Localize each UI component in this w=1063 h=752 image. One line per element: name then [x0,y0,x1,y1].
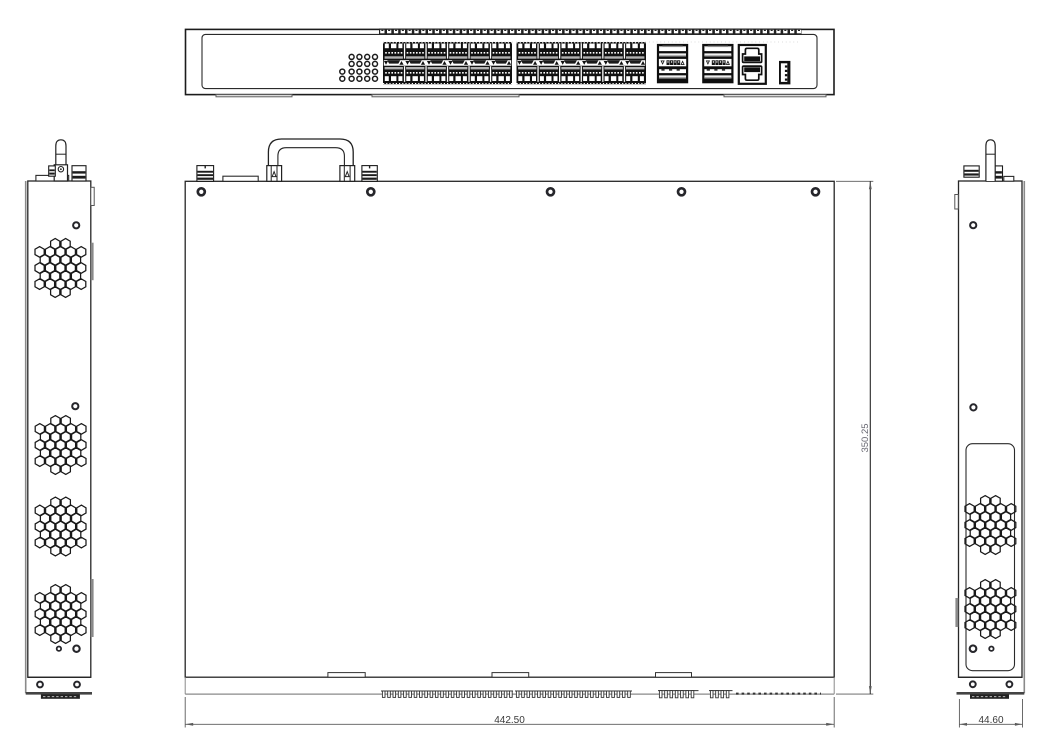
svg-text:44.60: 44.60 [978,715,1003,726]
svg-text:350.25: 350.25 [860,423,871,452]
svg-text:442.50: 442.50 [494,715,525,726]
